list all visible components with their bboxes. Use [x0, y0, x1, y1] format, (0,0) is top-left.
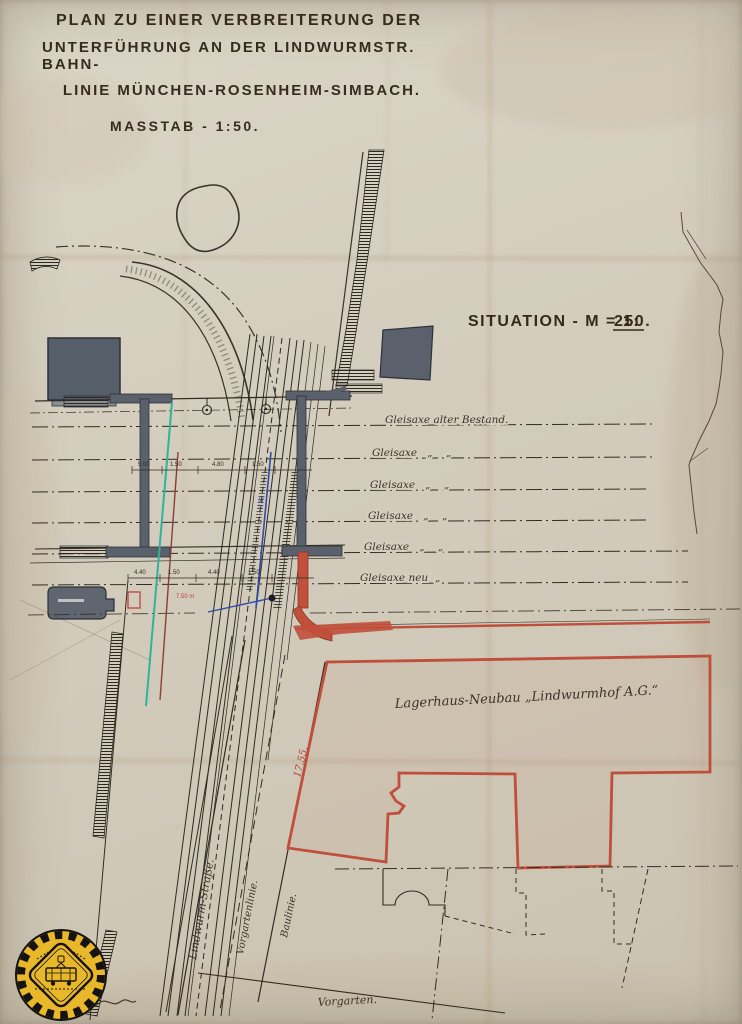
railway-embankment — [329, 150, 384, 416]
survey-point — [269, 595, 276, 602]
dimension-values: 5.00 1.50 4.80 1.50 4.40 1.50 4.40 1.50 … — [134, 462, 265, 600]
track-axis-labels: Gleisaxe alter Bestand. Gleisaxe „ „ Gle… — [360, 414, 508, 584]
axis-label-5: Gleisaxe „ „ — [364, 541, 443, 553]
situation-caption: SITUATION - M = 1: 250. — [468, 313, 651, 330]
blue-dimension-note: 3.52 — [258, 495, 265, 508]
arched-footprint — [383, 869, 445, 916]
vorgartenlinie-dashed — [220, 655, 285, 1010]
dim-value: 1.50 — [170, 462, 182, 468]
plan-sheet: 5.00 1.50 4.80 1.50 4.40 1.50 4.40 1.50 … — [0, 0, 742, 1024]
dim-value: 4.80 — [212, 462, 224, 468]
title-block: PLAN ZU EINER VERBREITERUNG DER UNTERFÜH… — [42, 12, 442, 99]
red-dimension-note: 7.50 m — [176, 594, 194, 600]
blue-tie-line — [208, 598, 272, 612]
title-line-1: PLAN ZU EINER VERBREITERUNG DER — [56, 12, 442, 30]
plan-drawing: 5.00 1.50 4.80 1.50 4.40 1.50 4.40 1.50 … — [0, 0, 742, 1024]
building-block-east — [380, 326, 433, 380]
dim-value: 1.50 — [168, 570, 180, 576]
red-wall-outline — [128, 592, 140, 608]
warehouse-new-building — [288, 619, 710, 868]
title-line-3: LINIE MÜNCHEN-ROSENHEIM-SIMBACH. — [42, 82, 442, 99]
building-block-west — [48, 338, 120, 400]
dark-red-line — [160, 452, 178, 700]
dim-value: 5.00 — [138, 462, 150, 468]
signal-posts — [203, 397, 271, 415]
axis-label-6: Gleisaxe neu „ — [360, 572, 440, 584]
dim-value: 1.50 — [252, 462, 264, 468]
dim-value: 4.40 — [134, 570, 146, 576]
axis-label-4: Gleisaxe „ „ — [368, 510, 447, 522]
wing-wall-hatched — [60, 546, 108, 558]
front-garden-line-label: Vorgartenlinie. — [235, 879, 260, 955]
dim-value: 4.40 — [208, 570, 220, 576]
building-line-label: Baulinie. — [279, 892, 299, 939]
title-line-2: UNTERFÜHRUNG AN DER LINDWURMSTR. BAHN- — [42, 39, 442, 73]
axis-label-3: Gleisaxe „ „ — [370, 479, 449, 491]
building-label-mark — [58, 599, 84, 602]
scale-label: MASSTAB - 1:50. — [110, 118, 260, 134]
hatched-wall-fragment — [30, 257, 60, 271]
axis-label-1: Gleisaxe alter Bestand. — [385, 414, 508, 426]
dim-value: 1.50 — [248, 570, 260, 576]
wing-wall-hatched — [64, 396, 108, 407]
tram-museum-badge — [16, 930, 106, 1020]
situation-scale: 250. — [614, 313, 651, 330]
axis-label-2: Gleisaxe „ „ — [372, 447, 451, 459]
